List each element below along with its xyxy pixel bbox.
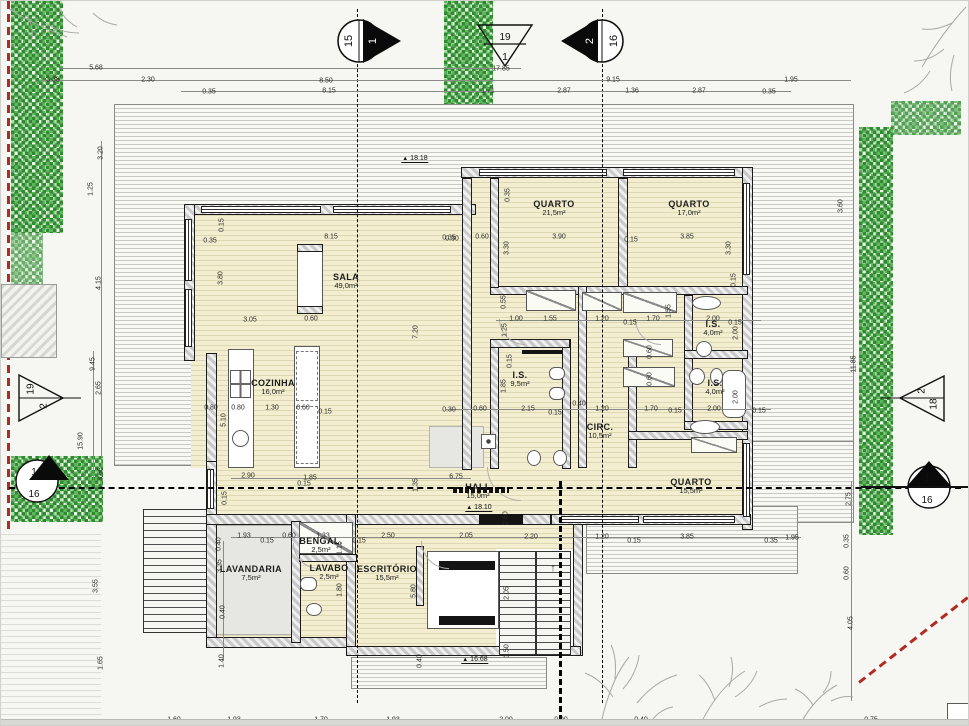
porch-deck-south: [351, 657, 547, 689]
closet: [691, 437, 737, 453]
wall-segment-wall-between-quartos: [618, 178, 628, 290]
kitchen-island: [228, 349, 254, 468]
window: [561, 516, 639, 523]
bathroom-sink: [690, 420, 720, 434]
hedge-top-center: [444, 1, 493, 117]
hedge-bottom-left: [11, 456, 103, 522]
window: [743, 443, 750, 517]
window: [185, 219, 192, 281]
kitchen-appliance: [296, 406, 318, 464]
hedge-left: [11, 1, 63, 233]
hedge-top-right: [891, 101, 961, 135]
lavabo-sink: [300, 577, 317, 591]
window: [201, 206, 321, 213]
fireplace-cap: [297, 306, 323, 314]
wall-segment-wall-is-west: [490, 339, 499, 469]
front-door-threshold: [479, 514, 523, 524]
floor-lavandaria: [214, 525, 292, 635]
section-line-vertical-bold: [559, 481, 562, 721]
wall-segment-wall-bath-divider: [684, 350, 748, 359]
closet: [623, 367, 675, 387]
dimension-line: [231, 478, 471, 479]
toilet: [527, 450, 541, 466]
fireplace-sala: [297, 244, 323, 314]
stair-stringer: [535, 551, 537, 655]
window: [185, 289, 192, 347]
wall-segment-wall-bath-west: [684, 295, 693, 425]
dimension-line: [41, 80, 851, 81]
wall-segment-wall-lavandaria-south: [206, 637, 354, 648]
bathroom-sink: [692, 296, 721, 310]
window: [207, 469, 214, 509]
bathtub: [722, 370, 746, 418]
wall-segment-wall-circ-west: [578, 286, 587, 468]
plan-geometry-layer: [1, 1, 969, 726]
dimension-line: [101, 141, 102, 471]
floor-plan-canvas: 15 1 19 1 2 16 19 2 1 1: [0, 0, 969, 726]
wall-segment-wall-is-north: [490, 339, 570, 348]
window: [743, 183, 750, 275]
wall-segment-wall-cozinha-west: [206, 353, 217, 469]
wall-segment-wall-is-east: [562, 339, 571, 469]
closet: [623, 292, 677, 313]
wall-segment-wall-stair-east: [573, 524, 583, 656]
dimension-line: [851, 481, 852, 701]
section-line-vertical-a: [357, 9, 358, 703]
dimension-line: [446, 409, 771, 410]
paving-left: [1, 529, 101, 726]
shower-drain: [481, 434, 496, 449]
bottom-edge-bar: [1, 719, 969, 726]
dimension-line: [223, 541, 224, 661]
wall-segment-wall-lavabo-east: [416, 546, 424, 606]
stove: [230, 370, 251, 398]
dimension-line: [496, 320, 761, 321]
neighbor-building-hatch: [1, 284, 57, 358]
dimension-line: [181, 91, 791, 92]
closet: [526, 290, 576, 311]
bathroom-sink: [549, 367, 565, 380]
dimension-line: [61, 68, 521, 69]
fireplace-cap: [297, 244, 323, 252]
toilet: [696, 341, 712, 357]
window: [623, 169, 735, 176]
dimension-line: [93, 351, 94, 481]
toilet: [553, 450, 567, 466]
window: [643, 516, 735, 523]
window: [479, 169, 607, 176]
towel-rail: [522, 350, 562, 354]
wall-segment-wall-quarto1-west: [490, 178, 499, 288]
lavabo-toilet: [306, 603, 322, 616]
chimney-flue: [439, 616, 495, 625]
kitchen-sink: [232, 430, 249, 447]
section-line-vertical-b: [602, 9, 603, 703]
bathroom-sink: [549, 387, 565, 400]
wall-segment-wall-corridor-west: [462, 178, 472, 470]
section-line-horizontal: [9, 487, 961, 489]
dimension-line: [231, 537, 801, 538]
hedge-right: [859, 127, 893, 535]
toilet: [689, 368, 705, 385]
stair-up-arrow-icon: ↑: [550, 562, 556, 574]
floor-shower-area: [429, 426, 484, 468]
kitchen-appliance: [296, 351, 318, 401]
window: [333, 206, 451, 213]
boundary-diagonal: [858, 589, 969, 684]
